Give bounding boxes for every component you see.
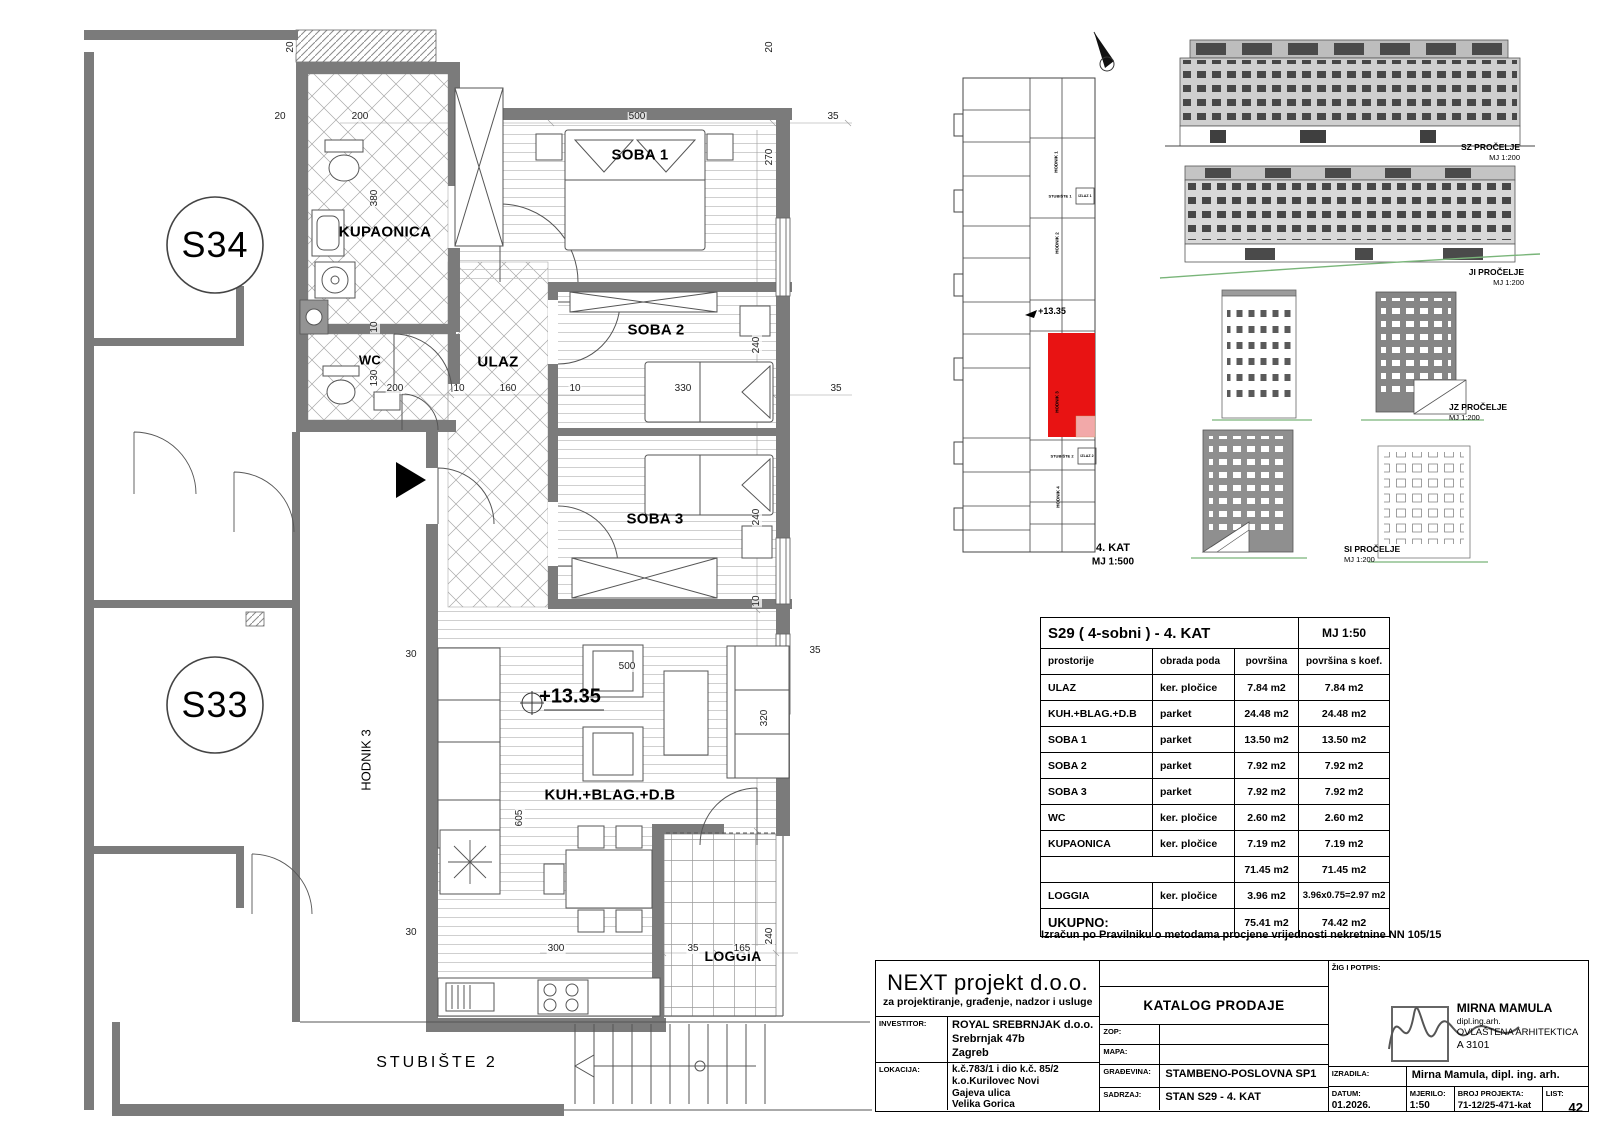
cell-empty <box>1041 857 1235 883</box>
stamp-number: A 3101 <box>1457 1039 1578 1052</box>
cell-area: 7.92 m2 <box>1235 779 1299 805</box>
dim-label: 380 <box>370 189 380 208</box>
elevation-name: SZ PROČELJE <box>1408 142 1520 153</box>
cell-area: 7.92 m2 <box>1235 753 1299 779</box>
elevation-caption-ji: JI PROČELJE MJ 1:200 <box>1412 267 1524 287</box>
dim-label: 10 <box>452 384 465 394</box>
table-row: SOBA 3 parket 7.92 m2 7.92 m2 <box>1041 779 1390 805</box>
cell-area-coef: 7.19 m2 <box>1299 831 1390 857</box>
cell-finish: ker. pločice <box>1153 675 1235 701</box>
keyplan-label-hodnik4: HODNIK 4 <box>1056 486 1061 508</box>
stamp-role: OVLAŠTENA ARHITEKTICA <box>1457 1027 1578 1039</box>
dim-label: 320 <box>760 709 770 728</box>
list-label: LIST: <box>1543 1087 1588 1100</box>
dim-label: 240 <box>765 927 775 946</box>
room-label-soba3: SOBA 3 <box>626 511 683 528</box>
cell-finish: ker. pločice <box>1153 883 1235 909</box>
cell-room: KUH.+BLAG.+D.B <box>1041 701 1153 727</box>
cell-area: 71.45 m2 <box>1235 857 1299 883</box>
unit-label-s34: S34 <box>181 224 248 266</box>
col-header: prostorije <box>1041 649 1153 675</box>
datum-label: DATUM: <box>1329 1087 1406 1100</box>
dim-label: 240 <box>752 508 762 527</box>
dim-label: 20 <box>273 112 286 122</box>
room-label-ulaz: ULAZ <box>477 354 518 371</box>
dim-label: 500 <box>628 112 647 122</box>
lokacija-line: Gajeva ulica <box>952 1088 1059 1100</box>
lokacija-line: k.o.Kurilovec Novi <box>952 1076 1059 1088</box>
elevation-scale: MJ 1:200 <box>1408 153 1520 162</box>
room-label-kupaonica: KUPAONICA <box>339 224 431 241</box>
cell-finish: parket <box>1153 779 1235 805</box>
table-row: KUPAONICA ker. pločice 7.19 m2 7.19 m2 <box>1041 831 1390 857</box>
keyplan-label-hodnik3: HODNIK 3 <box>1055 391 1060 413</box>
table-row: SOBA 2 parket 7.92 m2 7.92 m2 <box>1041 753 1390 779</box>
room-label-kuh: KUH.+BLAG.+D.B <box>545 787 676 804</box>
dim-label: 35 <box>829 384 842 394</box>
zop-label: ZOP: <box>1100 1025 1160 1044</box>
dim-label: 240 <box>752 336 762 355</box>
cell-room: KUPAONICA <box>1041 831 1153 857</box>
table-scale: MJ 1:50 <box>1299 618 1390 649</box>
elevation-name: JI PROČELJE <box>1412 267 1524 278</box>
cell-area-coef: 24.48 m2 <box>1299 701 1390 727</box>
table-row: ULAZ ker. pločice 7.84 m2 7.84 m2 <box>1041 675 1390 701</box>
highlighted-loggia <box>1076 416 1095 437</box>
table-row: WC ker. pločice 2.60 m2 2.60 m2 <box>1041 805 1390 831</box>
dim-label: 330 <box>674 384 693 394</box>
area-table: S29 ( 4-sobni ) - 4. KAT MJ 1:50 prostor… <box>1040 617 1390 937</box>
key-plan <box>954 78 1096 552</box>
sadrzaj-value: STAN S29 - 4. KAT <box>1160 1088 1266 1110</box>
dim-label: 165 <box>733 944 752 954</box>
dim-label: 160 <box>499 384 518 394</box>
drawing-sheet: S34 S33 KUPAONICA WC ULAZ SOBA 1 SOBA 2 … <box>0 0 1600 1132</box>
cell-finish: parket <box>1153 727 1235 753</box>
mapa-label: MAPA: <box>1100 1045 1160 1064</box>
gradevina-label: GRAĐEVINA: <box>1100 1065 1160 1087</box>
dim-label: 35 <box>686 944 699 954</box>
dim-label: 30 <box>404 650 417 660</box>
cell-finish: ker. pločice <box>1153 805 1235 831</box>
dim-label: 20 <box>765 40 775 53</box>
cell-room: SOBA 3 <box>1041 779 1153 805</box>
cell-area-coef: 7.92 m2 <box>1299 779 1390 805</box>
elevation-scale: MJ 1:200 <box>1412 278 1524 287</box>
table-row: SOBA 1 parket 13.50 m2 13.50 m2 <box>1041 727 1390 753</box>
dim-label: 10 <box>568 384 581 394</box>
table-header-row: prostorije obrada poda površina površina… <box>1041 649 1390 675</box>
level-mark: +13.35 <box>539 686 601 709</box>
cell-area-coef: 71.45 m2 <box>1299 857 1390 883</box>
dim-label: 200 <box>351 112 370 122</box>
col-header: obrada poda <box>1153 649 1235 675</box>
elevation-sz <box>1165 40 1535 146</box>
dim-label: 10 <box>752 594 762 607</box>
cell-finish: parket <box>1153 753 1235 779</box>
unit-label-s33: S33 <box>181 684 248 726</box>
elevation-scale: MJ 1:200 <box>1449 413 1507 422</box>
cell-area: 2.60 m2 <box>1235 805 1299 831</box>
keyplan-label-stubiste1: STUBIŠTE 1 <box>1048 194 1071 199</box>
cell-area-coef: 7.92 m2 <box>1299 753 1390 779</box>
entrance-arrow-icon <box>396 462 426 498</box>
company-subtitle: za projektiranje, građenje, nadzor i usl… <box>883 996 1092 1008</box>
cell-area: 24.48 m2 <box>1235 701 1299 727</box>
investitor-line: Zagreb <box>952 1047 1093 1061</box>
table-row: KUH.+BLAG.+D.B parket 24.48 m2 24.48 m2 <box>1041 701 1390 727</box>
cell-room: LOGGIA <box>1041 883 1153 909</box>
elevation-name: SI PROČELJE <box>1344 544 1400 555</box>
cell-area-coef: 13.50 m2 <box>1299 727 1390 753</box>
col-header: površina s koef. <box>1299 649 1390 675</box>
elevation-caption-si: SI PROČELJE MJ 1:200 <box>1344 544 1400 564</box>
dim-label: 35 <box>808 646 821 656</box>
dim-label: 500 <box>618 662 637 672</box>
valuation-note: Izračun po Pravilniku o metodama procjen… <box>1041 929 1441 941</box>
cell-room: WC <box>1041 805 1153 831</box>
company-name: NEXT projekt d.o.o. <box>887 970 1088 996</box>
dim-label: 20 <box>286 40 296 53</box>
keyplan-label-hodnik1: HODNIK 1 <box>1054 151 1059 173</box>
table-row: LOGGIA ker. pločice 3.96 m2 3.96x0.75=2.… <box>1041 883 1390 909</box>
north-arrow-icon <box>1094 32 1114 71</box>
keyplan-label-izlaz2: IZLAZ 2 <box>1080 454 1093 458</box>
datum-value: 01.2026. <box>1329 1100 1406 1113</box>
keyplan-label-hodnik2: HODNIK 2 <box>1055 232 1060 254</box>
sadrzaj-label: SADRZAJ: <box>1100 1088 1160 1110</box>
investitor-label: INVESTITOR: <box>876 1017 948 1062</box>
mjerilo-label: MJERILO: <box>1407 1087 1454 1100</box>
dim-label: 605 <box>515 809 525 828</box>
stamp-title: dipl.ing.arh. <box>1457 1016 1578 1027</box>
keyplan-label-izlaz1: IZLAZ 1 <box>1078 194 1091 198</box>
catalog-title: KATALOG PRODAJE <box>1143 998 1284 1013</box>
gradevina-value: STAMBENO-POSLOVNA SP1 <box>1160 1065 1321 1087</box>
table-title-row: S29 ( 4-sobni ) - 4. KAT MJ 1:50 <box>1041 618 1390 649</box>
table-title: S29 ( 4-sobni ) - 4. KAT <box>1041 618 1299 649</box>
dim-label: 10 <box>370 320 380 333</box>
room-label-wc: WC <box>359 353 381 368</box>
title-block: NEXT projekt d.o.o. za projektiranje, gr… <box>875 960 1589 1112</box>
room-label-soba1: SOBA 1 <box>611 147 668 164</box>
investitor-line: ROYAL SREBRNJAK d.o.o. <box>952 1019 1093 1033</box>
elevation-jz <box>1212 290 1484 420</box>
keyplan-level-mark: +13.35 <box>1038 306 1066 316</box>
broj-value: 71-12/25-471-kat <box>1455 1100 1542 1112</box>
cell-area: 7.84 m2 <box>1235 675 1299 701</box>
list-value: 42 <box>1543 1100 1588 1116</box>
elevation-scale: MJ 1:200 <box>1344 555 1400 564</box>
zig-label: ŽIG I POTPIS: <box>1329 961 1384 974</box>
cell-area-coef: 7.84 m2 <box>1299 675 1390 701</box>
dim-label: 30 <box>404 928 417 938</box>
room-label-stubiste2: STUBIŠTE 2 <box>376 1054 498 1072</box>
cell-room: SOBA 1 <box>1041 727 1153 753</box>
cell-finish: ker. pločice <box>1153 831 1235 857</box>
cell-area: 13.50 m2 <box>1235 727 1299 753</box>
elevation-caption-jz: JZ PROČELJE MJ 1:200 <box>1449 402 1507 422</box>
dim-label: 300 <box>547 944 566 954</box>
cell-finish: parket <box>1153 701 1235 727</box>
col-header: površina <box>1235 649 1299 675</box>
mjerilo-value: 1:50 <box>1407 1100 1454 1113</box>
lokacija-line: Velika Gorica <box>952 1099 1059 1111</box>
dim-label: 200 <box>386 384 405 394</box>
keyplan-caption-scale: MJ 1:500 <box>1092 557 1134 568</box>
elevation-si <box>1191 430 1488 562</box>
elevation-caption-sz: SZ PROČELJE MJ 1:200 <box>1408 142 1520 162</box>
dim-label: 130 <box>370 369 380 388</box>
cell-area: 3.96 m2 <box>1235 883 1299 909</box>
cell-area-coef: 2.60 m2 <box>1299 805 1390 831</box>
broj-label: BROJ PROJEKTA: <box>1455 1087 1542 1100</box>
cell-area: 7.19 m2 <box>1235 831 1299 857</box>
cell-room: ULAZ <box>1041 675 1153 701</box>
stamp-name: MIRNA MAMULA <box>1457 1001 1578 1016</box>
elevation-ji <box>1160 166 1540 278</box>
dim-label: 35 <box>826 112 839 122</box>
keyplan-caption: 4. KAT <box>1096 542 1130 554</box>
room-label-hodnik3: HODNIK 3 <box>359 729 374 790</box>
room-label-soba2: SOBA 2 <box>627 322 684 339</box>
keyplan-label-stubiste2: STUBIŠTE 2 <box>1050 454 1073 459</box>
dim-label: 270 <box>765 148 775 167</box>
lokacija-label: LOKACIJA: <box>876 1063 948 1110</box>
table-subtotal-row: 71.45 m2 71.45 m2 <box>1041 857 1390 883</box>
lokacija-line: k.č.783/1 i dio k.č. 85/2 <box>952 1064 1059 1076</box>
elevation-name: JZ PROČELJE <box>1449 402 1507 413</box>
radiator <box>246 612 264 626</box>
cell-area-coef: 3.96x0.75=2.97 m2 <box>1299 883 1390 909</box>
cell-room: SOBA 2 <box>1041 753 1153 779</box>
investitor-line: Srebrnjak 47b <box>952 1033 1093 1047</box>
